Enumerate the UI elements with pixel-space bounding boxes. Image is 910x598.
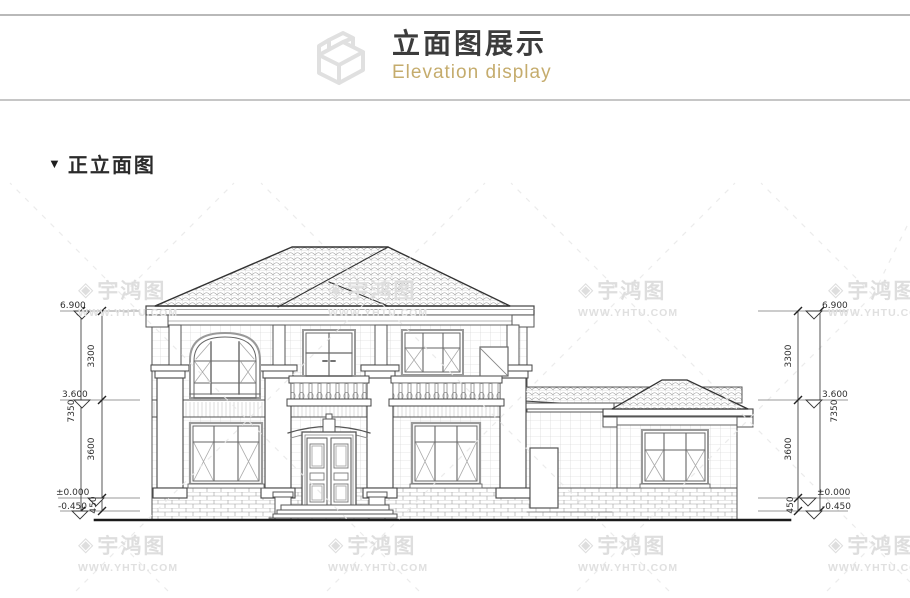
dim-3300-right: 3300 bbox=[784, 344, 794, 367]
section-title: 正立面图 bbox=[68, 149, 156, 178]
balcony-french-door bbox=[303, 330, 355, 376]
balcony-side-door bbox=[480, 347, 508, 376]
level-label-floor2-right: 3.600 bbox=[822, 390, 848, 400]
dim-3600-right: 3600 bbox=[784, 437, 794, 460]
top-border-line bbox=[0, 14, 910, 16]
page: 立面图展示 Elevation display ▼ 正立面图 bbox=[0, 0, 910, 598]
triangle-marker-icon: ▼ bbox=[48, 156, 61, 171]
annex-cornice bbox=[603, 409, 753, 427]
level-label-eave-left: 6.900 bbox=[60, 301, 86, 311]
dim-7350-right: 7350 bbox=[830, 399, 840, 422]
main-cornice bbox=[146, 306, 534, 327]
header-divider bbox=[0, 99, 910, 101]
level-label-floor2-left: 3.600 bbox=[62, 390, 88, 400]
level-label-ground-right: ±0.000 bbox=[817, 488, 851, 498]
main-hip-roof bbox=[155, 247, 510, 307]
balcony-balustrade bbox=[287, 376, 504, 406]
arched-window bbox=[190, 333, 260, 398]
dim-450-right: 450 bbox=[786, 496, 796, 513]
level-label-grade-right: -0.450 bbox=[822, 502, 851, 512]
section-heading: ▼ 正立面图 bbox=[48, 149, 156, 178]
dim-3600-left: 3600 bbox=[87, 437, 97, 460]
level-label-eave-right: 6.900 bbox=[822, 301, 848, 311]
page-subtitle: Elevation display bbox=[392, 62, 552, 84]
first-floor-window-right bbox=[410, 423, 482, 488]
annex-window bbox=[640, 430, 710, 488]
brick-plinth bbox=[152, 488, 737, 520]
first-floor-window-left bbox=[188, 423, 264, 488]
dim-450-left: 450 bbox=[89, 496, 99, 513]
house-elevation bbox=[95, 247, 790, 520]
dim-7350-left: 7350 bbox=[67, 399, 77, 422]
level-label-ground-left: ±0.000 bbox=[56, 488, 90, 498]
dimension-set-left: 6.900 3.600 ±0.000 -0.450 3300 3600 450 … bbox=[56, 301, 140, 519]
elevation-3d-box-icon bbox=[305, 22, 371, 95]
front-elevation-drawing: 6.900 3.600 ±0.000 -0.450 3300 3600 450 … bbox=[0, 180, 910, 598]
page-title: 立面图展示 bbox=[392, 28, 552, 60]
second-floor-window bbox=[402, 330, 463, 375]
level-label-grade-left: -0.450 bbox=[58, 502, 87, 512]
dim-3300-left: 3300 bbox=[87, 344, 97, 367]
dimension-set-right: 6.900 3.600 ±0.000 -0.450 3300 3600 450 … bbox=[758, 301, 851, 519]
